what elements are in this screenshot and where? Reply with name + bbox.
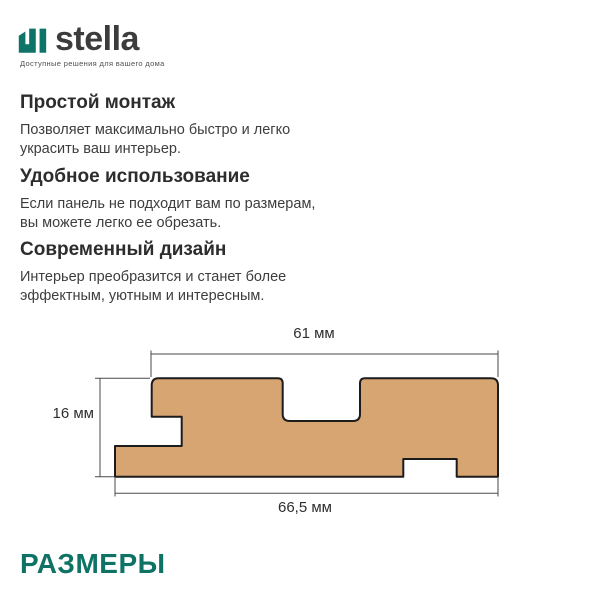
feature-text-line: эффектным, уютным и интересным.: [20, 287, 372, 306]
stella-logo-icon: [15, 24, 49, 55]
panel-profile-shape: [115, 378, 498, 476]
feature-text-line: украсить ваш интерьер.: [20, 140, 372, 159]
feature-text-line: Интерьер преобразится и станет более: [20, 268, 372, 287]
dimension-top-width-label: 61 мм: [293, 325, 334, 342]
feature-title: Простой монтаж: [20, 92, 372, 114]
brand-header: stella Доступные решения для вашего дома: [15, 24, 165, 68]
dimension-bottom-width-label: 66,5 мм: [278, 499, 332, 516]
dimension-top-width: [151, 351, 498, 378]
feature-title: Современный дизайн: [20, 239, 372, 261]
feature-easy-use: Удобное использование Если панель не под…: [20, 166, 372, 232]
feature-text-line: Позволяет максимально быстро и легко: [20, 121, 372, 140]
feature-easy-install: Простой монтаж Позволяет максимально быс…: [20, 92, 372, 158]
brand-name: stella: [55, 24, 139, 55]
dimension-height-label: 16 мм: [53, 405, 94, 422]
feature-modern-design: Современный дизайн Интерьер преобразится…: [20, 239, 372, 305]
feature-text-line: вы можете легко ее обрезать.: [20, 214, 372, 233]
feature-text-line: Если панель не подходит вам по размерам,: [20, 195, 372, 214]
brand-tagline: Доступные решения для вашего дома: [20, 59, 165, 68]
sizes-section-label: РАЗМЕРЫ: [20, 548, 166, 580]
panel-cross-section-diagram: 61 мм 16 мм 66,5 мм: [0, 318, 600, 518]
promo-card: stella Доступные решения для вашего дома…: [0, 0, 600, 600]
feature-title: Удобное использование: [20, 166, 372, 188]
dimension-bottom-width: [115, 478, 498, 497]
